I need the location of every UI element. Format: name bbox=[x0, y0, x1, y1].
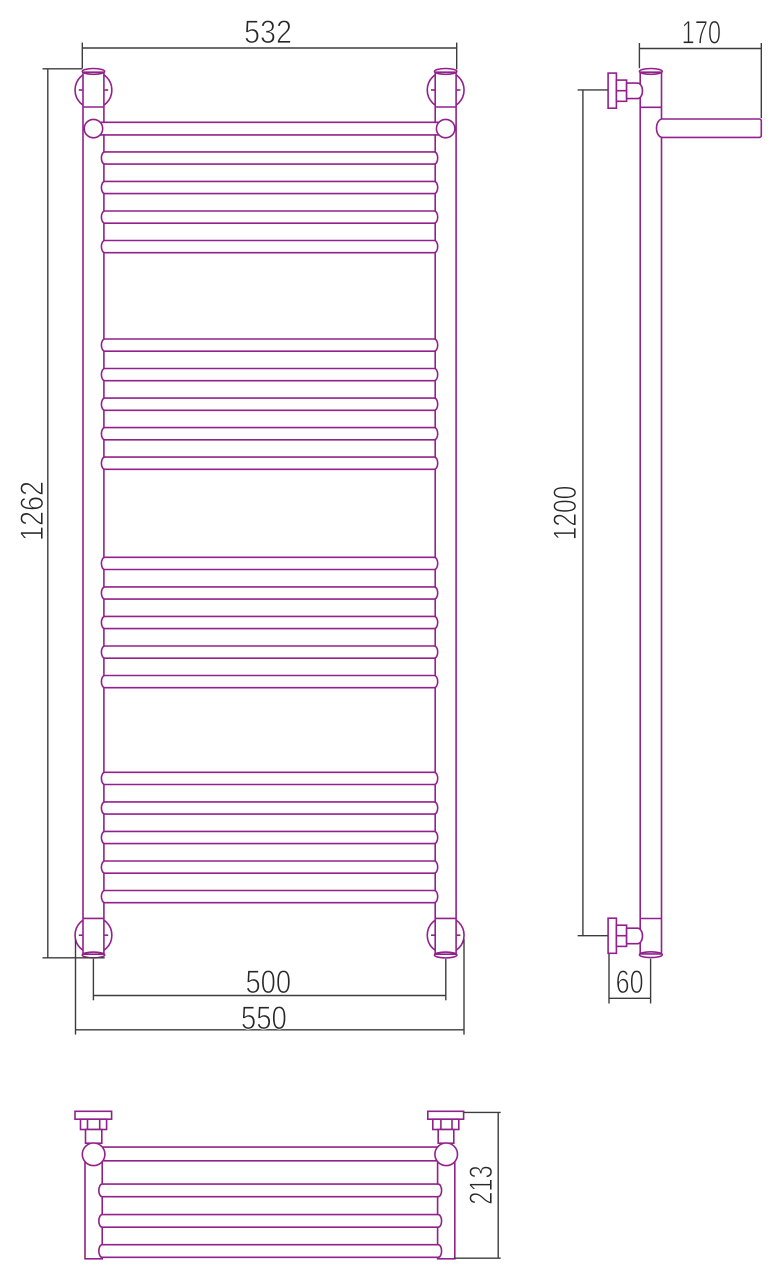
svg-text:1262: 1262 bbox=[14, 481, 50, 541]
svg-text:500: 500 bbox=[245, 964, 291, 1000]
svg-text:532: 532 bbox=[244, 14, 292, 50]
svg-text:550: 550 bbox=[241, 1000, 287, 1036]
svg-text:1200: 1200 bbox=[547, 486, 583, 541]
svg-text:213: 213 bbox=[463, 1165, 499, 1204]
svg-text:170: 170 bbox=[682, 15, 722, 51]
svg-text:60: 60 bbox=[616, 964, 644, 1000]
